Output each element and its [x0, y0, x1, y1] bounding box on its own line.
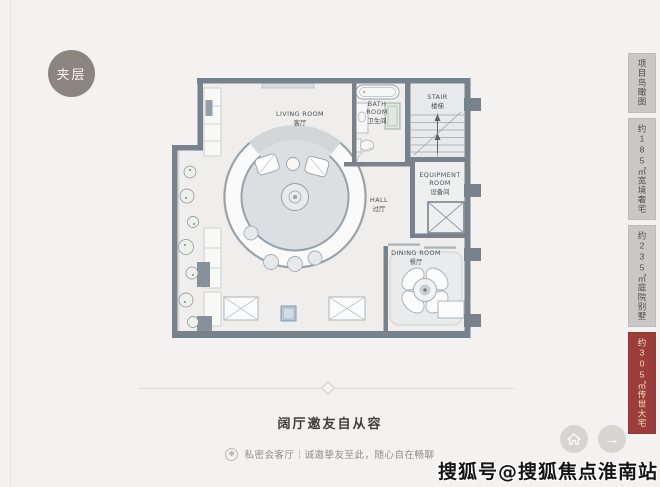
equipment-label-en1: EQUIPMENT [419, 171, 460, 179]
right-arrow-icon: → [605, 432, 620, 447]
page: { "badge": { "label": "夹层" }, "plan": { … [0, 0, 660, 487]
floor-fixture [281, 306, 296, 321]
tab-235sqm-unit[interactable]: 约235㎡庭院别墅 [628, 225, 656, 327]
terrace-edge [178, 150, 179, 332]
tab-project-aerial-view[interactable]: 项目鸟瞰图 [628, 53, 656, 113]
hall-label-cn: 过厅 [373, 204, 386, 213]
living-label-cn: 客厅 [294, 118, 307, 127]
room-label-bath: BATH ROOM 卫生间 [366, 100, 388, 125]
stair-label-en: STAIR [427, 93, 447, 101]
dining-label-cn: 餐厅 [410, 257, 423, 266]
stair-label-cn: 楼梯 [431, 101, 444, 110]
floor-badge: 夹层 [48, 50, 95, 97]
tab-185sqm-unit[interactable]: 约185㎡宽境奢宅 [628, 118, 656, 220]
home-button[interactable] [560, 425, 588, 453]
next-slide-button[interactable]: → [598, 425, 626, 453]
dining-label-en: DINING ROOM [391, 249, 441, 257]
shaft [428, 202, 464, 233]
left-wall-block-2 [197, 316, 212, 331]
equipment-label-cn: 设备间 [430, 187, 449, 196]
slogan-heading: 阔厅邀友自从容 [130, 413, 530, 432]
shower-unit [385, 103, 400, 129]
floorplan-tab-list: 项目鸟瞰图 约185㎡宽境奢宅 约235㎡庭院别墅 约305㎡传世大宅 [628, 53, 656, 439]
side-table [287, 158, 300, 171]
equipment-label-en2: ROOM [429, 179, 451, 187]
seal-icon: ✽ [225, 448, 238, 461]
watermark-text: 搜狐号@搜狐焦点淮南站 [438, 457, 658, 484]
divider-ornament-icon [321, 381, 335, 395]
hall-label-en: HALL [370, 196, 388, 204]
living-label-en: LIVING ROOM [276, 110, 324, 118]
coffee-table [282, 184, 309, 211]
floor-plan: LIVING ROOM 客厅 BATH ROOM 卫生间 STAIR 楼梯 EQ… [160, 50, 530, 365]
home-icon [567, 432, 581, 446]
tab-305sqm-unit-active[interactable]: 约305㎡传世大宅 [628, 332, 656, 434]
floor-badge-label: 夹层 [56, 64, 86, 83]
slogan-caption-text: 私密会客厅｜诚邀挚友至此，随心自在畅聊 [244, 447, 434, 461]
page-left-border [10, 0, 11, 487]
room-label-hall: HALL 过厅 [370, 196, 388, 213]
left-wall-block-1 [197, 262, 210, 287]
bath-label-en1: BATH [368, 100, 387, 108]
bath-label-cn: 卫生间 [367, 116, 386, 125]
bath-label-en2: ROOM [366, 108, 388, 116]
